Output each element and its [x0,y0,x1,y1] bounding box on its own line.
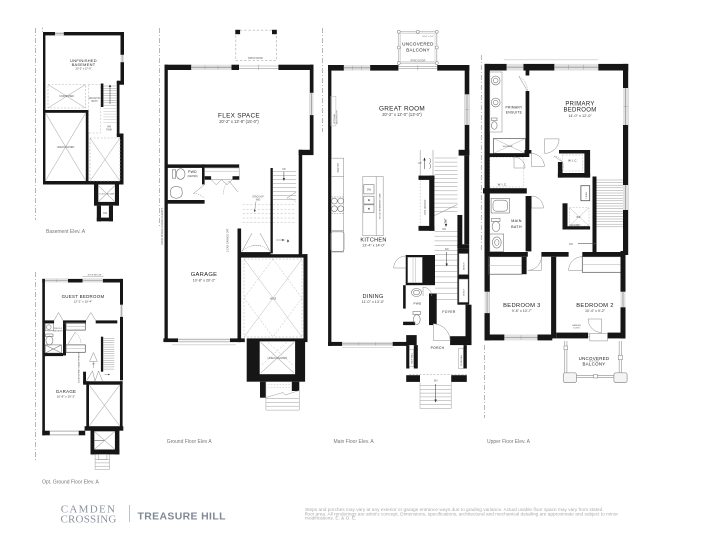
svg-text:UP: UP [282,167,286,171]
svg-text:PRIMARY: PRIMARY [565,101,594,107]
svg-text:TANK: TANK [106,128,112,131]
svg-text:20'-2" x 13'-8" (15'-0"): 20'-2" x 13'-8" (15'-0") [219,119,259,124]
svg-text:SOLID RAIL: SOLID RAIL [460,354,463,366]
svg-text:PATIO DOOR: PATIO DOOR [248,57,263,60]
svg-text:BENCH: BENCH [464,262,466,270]
svg-text:DN: DN [445,248,449,251]
svg-text:BATH: BATH [511,225,522,229]
svg-text:CROSSING: CROSSING [60,514,116,526]
svg-text:UNEXCAVATED: UNEXCAVATED [268,356,288,360]
svg-text:GARAGE: GARAGE [56,389,77,394]
svg-text:KITCHEN: KITCHEN [360,237,386,243]
svg-text:2-CAR GARAGE OPT.: 2-CAR GARAGE OPT. [227,228,230,252]
svg-text:DN: DN [434,380,438,383]
svg-text:PORCH: PORCH [431,346,445,350]
svg-text:OPTIONAL: OPTIONAL [333,113,336,124]
svg-text:ENSUITE: ENSUITE [506,110,523,114]
svg-text:FLUSH BREAKFAST BAR: FLUSH BREAKFAST BAR [378,193,381,219]
svg-text:ELECTRIC F/P: ELECTRIC F/P [337,110,339,124]
svg-text:(GRND): (GRND) [187,174,197,178]
svg-text:BALCONY: BALCONY [406,47,430,52]
svg-text:14'-0" x 12'-0": 14'-0" x 12'-0" [568,114,592,118]
svg-text:W.I.C.: W.I.C. [568,159,578,163]
svg-text:W.I.C.: W.I.C. [498,183,508,187]
svg-text:9'-6" x 10'-7": 9'-6" x 10'-7" [512,309,533,313]
svg-text:BEDROOM: BEDROOM [563,108,596,114]
svg-text:TREASURE HILL: TREASURE HILL [138,512,227,523]
svg-text:COLD CELLAR: COLD CELLAR [99,192,115,195]
svg-text:10'-8" x 20'-2": 10'-8" x 20'-2" [193,279,216,283]
svg-text:DN: DN [443,228,447,231]
svg-text:ROOF BELOW: ROOF BELOW [88,275,102,277]
svg-text:LAUNDRY: LAUNDRY [53,329,63,332]
svg-text:DOOR WHERE GRADE PERMITS: DOOR WHERE GRADE PERMITS [78,351,81,383]
svg-text:Opt. Ground Floor Elev. A: Opt. Ground Floor Elev. A [42,480,100,486]
svg-text:GARAGE: GARAGE [191,272,218,278]
svg-text:HOSE: HOSE [270,299,277,301]
svg-text:HALF WALL: HALF WALL [410,352,413,364]
svg-text:DOOR: DOOR [573,328,580,330]
svg-text:13'-4" x 14'-0": 13'-4" x 14'-0" [362,243,385,247]
svg-text:GARDEN: GARDEN [572,324,581,327]
svg-text:Upper Floor Elev. A: Upper Floor Elev. A [487,439,531,445]
svg-text:UP: UP [418,161,422,165]
svg-text:SHELF: SHELF [464,288,466,296]
svg-text:ROUGH-IN: ROUGH-IN [89,98,101,100]
svg-text:10'-4" x 9'-2": 10'-4" x 9'-2" [585,309,606,313]
svg-text:DW: DW [367,188,372,192]
svg-text:UNFINISHED: UNFINISHED [59,95,74,98]
svg-text:PWD: PWD [414,302,422,306]
svg-text:11'-0" x 13'-0": 11'-0" x 13'-0" [362,300,385,304]
svg-text:STACK-UP: STACK-UP [252,196,264,199]
svg-text:OPT. PANTRY: OPT. PANTRY [424,199,427,215]
svg-text:UP: UP [92,364,96,366]
svg-text:PRIMARY: PRIMARY [505,105,523,109]
svg-text:Main Floor Elev. A: Main Floor Elev. A [334,439,375,445]
svg-text:10'-8" x 20'-2": 10'-8" x 20'-2" [57,394,75,398]
svg-text:modifications. E. & O. E.: modifications. E. & O. E. [305,516,356,522]
svg-text:Ground Floor Elev A: Ground Floor Elev A [167,439,213,445]
svg-text:D: D [287,239,289,243]
svg-text:GUEST BEDROOM: GUEST BEDROOM [62,294,105,299]
svg-text:PANTRY: PANTRY [337,163,340,173]
svg-text:DINING: DINING [362,294,383,300]
svg-text:BASEMENT: BASEMENT [72,62,96,67]
svg-text:UNCOVERED: UNCOVERED [402,41,434,46]
svg-text:LINEN: LINEN [586,192,588,199]
svg-text:10'-0" x 5'-0": 10'-0" x 5'-0" [422,36,433,38]
svg-text:DN: DN [569,243,573,246]
svg-text:DOOR WHERE GRADE PERMITS: DOOR WHERE GRADE PERMITS [161,207,164,245]
svg-text:W/D: W/D [256,199,261,201]
svg-text:Basement Elev. A: Basement Elev. A [46,229,86,235]
svg-text:PATIO DOOR: PATIO DOOR [411,60,426,63]
svg-text:12'-2" x 10'-4": 12'-2" x 10'-4" [74,299,92,303]
svg-text:BATH: BATH [92,100,98,103]
svg-text:20'-2" x 12'-0" (13'-0"): 20'-2" x 12'-0" (13'-0") [382,112,422,117]
svg-text:B/D: B/D [577,217,581,219]
svg-text:FOYER: FOYER [442,310,455,314]
svg-text:UNEXCAVATED: UNEXCAVATED [57,146,75,149]
svg-text:10'-4" x 6'-0": 10'-4" x 6'-0" [589,361,599,363]
svg-text:20'-2" x 27'-5": 20'-2" x 27'-5" [76,66,92,70]
svg-text:MAIN: MAIN [511,219,521,223]
svg-text:SHOWER: SHOWER [503,146,513,148]
